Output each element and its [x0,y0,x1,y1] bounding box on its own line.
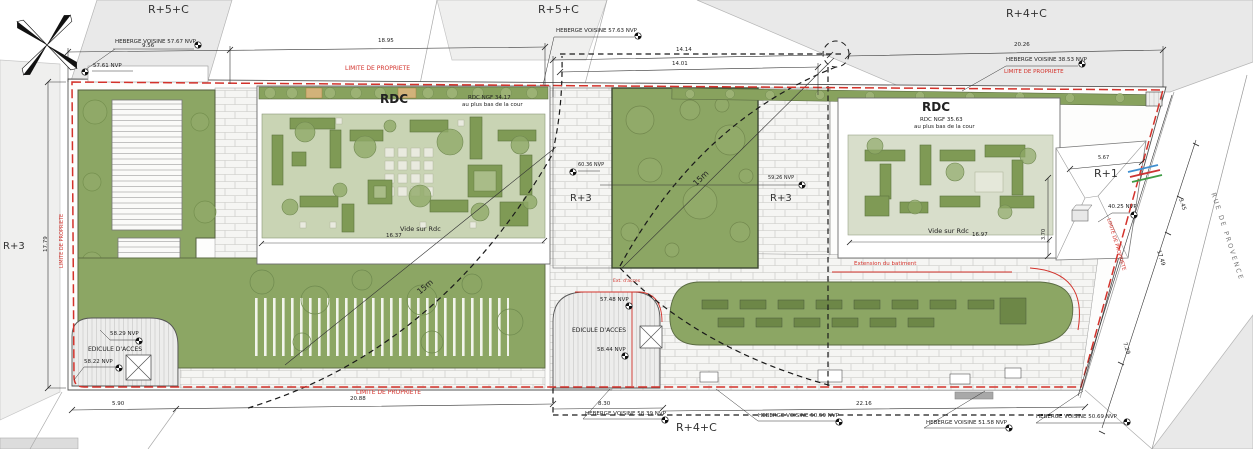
right-green-band [670,282,1073,345]
dim-top: 14.14 [676,48,692,54]
courtyard-left [257,86,550,264]
heberge-note: HEBERGE VOISINE 38.53 NVP [1006,58,1087,64]
parcel-label: R+4+C [1006,8,1047,19]
dim-top: 14.01 [672,62,688,68]
dim-top: 9.56 [142,44,154,50]
site-plan: R+5+C R+5+C R+4+C R+3 R+4+C RUE DE PROVE… [0,0,1253,449]
limite-label: LIMITE DE PROPRIETE [345,66,410,72]
edicule-left-level-top: 58.29 NVP [110,332,139,338]
dim-bottom: 22.16 [856,402,872,408]
rdc-left-title: RDC [380,93,408,105]
parcel-label: R+5+C [538,4,579,15]
dim-r1-depth: 3.70 [1042,229,1047,240]
extension-note: Extension du batiment [854,262,916,268]
rdc-right-title: RDC [922,101,950,113]
edicule-red-note: Ext. d'acces [613,280,640,285]
edicule-left-level-bottom: 58.22 NVP [84,360,113,366]
heberge-note: HEBERGE VOISINE 58.39 NVP [585,412,666,418]
edicule-center [553,292,662,388]
dim-top: 18.95 [378,39,394,45]
rdc-left-ngf: RDC NGF 34.17 [468,96,511,102]
rdc-left-vide: Vide sur Rdc [400,226,441,233]
heberge-note: HEBERGE VOISINE 50.59 NVP [758,414,839,420]
rdc-left-sub: au plus bas de la cour [462,103,523,109]
heberge-note: HEBERGE VOISINE 57.67 NVP [115,40,196,46]
heberge-note: HEBERGE VOISINE 57.63 NVP [556,29,637,35]
dim-top: 20.26 [1014,43,1030,49]
parcel-label: R+5+C [148,4,189,15]
dim-bottom: 5.90 [112,402,124,408]
rdc-right-ngf: RDC NGF 35.63 [920,118,963,124]
edicule-center-label: EDICULE D'ACCES [572,328,626,334]
level-r1: 40.25 NVP [1108,205,1137,211]
r3-right-label: R+3 [770,194,792,204]
rdc-right-vide: Vide sur Rdc [928,228,969,235]
limite-label: LIMITE DE PROPRIETE [60,214,65,268]
r3-left-label: R+3 [570,194,592,204]
dim-r1-width: 5.67 [1098,156,1109,161]
rdc-left-vide-dim: 16.37 [386,234,402,240]
r3-left-level: 60.36 NVP [578,163,604,168]
edicule-center-level-top: 57.48 NVP [600,298,629,304]
edicule-center-level-bottom: 58.44 NVP [597,348,626,354]
level-top-left: 57.61 NVP [93,64,122,70]
heberge-note: HEBERGE VOISINE 51.58 NVP [926,421,1007,427]
rdc-right-sub: au plus bas de la cour [914,125,975,131]
dim-left: 17.79 [44,236,50,252]
dim-bottom: 8.30 [598,402,610,408]
central-green-roof [612,88,758,268]
limite-label: LIMITE DE PROPRIETE [1004,70,1064,76]
parcel-label: R+4+C [676,422,717,433]
parcel-label: R+3 [3,242,25,252]
heberge-note: HEBERGE VOISINE 50.69 NVP [1036,415,1117,421]
edicule-left-label: EDICULE D'ACCES [88,347,142,353]
r1-label: R+1 [1094,168,1118,179]
r3-right-level: 59.26 NVP [768,176,794,181]
rdc-right-vide-dim: 16.97 [972,233,988,239]
site-plan-drawing [0,0,1253,449]
dim-bottom: 20.88 [350,397,366,403]
